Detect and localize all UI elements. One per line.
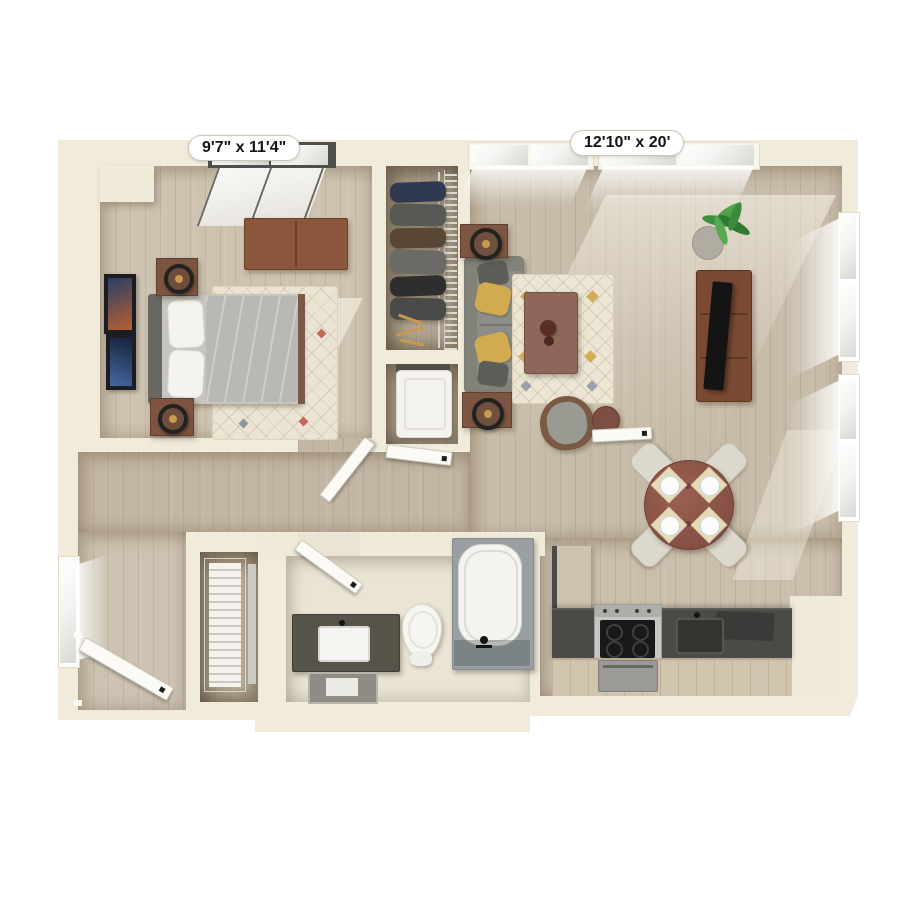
front-door-handle <box>159 686 166 693</box>
end-lamp-bulb-upper <box>482 240 490 248</box>
coffee-table-decor-vase <box>540 320 556 336</box>
toilet-base <box>410 652 432 666</box>
washer-lid <box>404 378 446 430</box>
living-right-pane-1 <box>840 215 856 279</box>
stove-knob-4 <box>647 609 651 613</box>
bedroom-corner-column <box>100 166 154 202</box>
hanging-garment-3 <box>390 228 446 249</box>
armchair-cushion <box>544 399 591 447</box>
hanging-garment-5 <box>390 275 447 297</box>
kitchen-faucet <box>694 612 700 618</box>
hanging-garment-2 <box>390 204 446 227</box>
sofa-back <box>465 257 477 393</box>
plate-nw <box>659 475 681 497</box>
wall-art-2 <box>106 334 136 390</box>
end-table-lamp-upper <box>470 228 502 260</box>
bed-pillow-2 <box>167 349 205 399</box>
range-stove <box>594 604 662 662</box>
oven-front <box>598 660 658 692</box>
coffee-table-decor-small <box>544 336 554 346</box>
stove-knob-1 <box>603 609 607 613</box>
vanity-faucet <box>339 620 345 626</box>
burner-3 <box>606 641 623 658</box>
entry-window-pane <box>60 559 76 663</box>
laundry-door-handle <box>441 456 447 462</box>
kitchen-base-cabinets <box>552 658 792 696</box>
dining-table <box>644 460 734 550</box>
living-right-pane-2 <box>840 284 856 357</box>
bathtub-inner-rim <box>464 550 518 642</box>
living-right-pane-4 <box>840 444 856 517</box>
bed-footboard <box>298 294 305 404</box>
potted-plant <box>686 198 760 264</box>
burner-2 <box>632 624 649 641</box>
dresser <box>244 218 348 270</box>
hanging-garment-1 <box>390 181 447 203</box>
wall-art-1 <box>104 274 136 334</box>
stove-control-panel <box>595 605 661 617</box>
bed-duvet <box>206 296 300 402</box>
burner-4 <box>632 641 649 658</box>
table-lamp-lower <box>158 404 188 434</box>
stove-cooktop <box>600 620 655 658</box>
burner-1 <box>606 624 623 641</box>
stove-knob-2 <box>615 609 619 613</box>
living-window-pane-1 <box>471 145 528 165</box>
hanging-garment-6 <box>390 298 446 321</box>
tub-faucet <box>480 636 488 644</box>
living-window-pane-4 <box>679 145 754 165</box>
oven-handle <box>603 665 653 668</box>
counter-appliance <box>716 611 775 641</box>
washer-unit <box>396 370 452 438</box>
bathtub <box>458 544 522 646</box>
living-room-dimension-label: 12'10" x 20' <box>570 130 684 156</box>
front-door-jamb-bottom <box>74 700 82 706</box>
bedroom-dimension-label: 9'7" x 11'4" <box>188 135 300 161</box>
floorplan-canvas: 9'7" x 11'4" 12'10" x 20' <box>0 0 900 900</box>
tub-deck-shadow <box>454 640 530 666</box>
stove-knob-3 <box>635 609 639 613</box>
end-lamp-bulb-lower <box>484 410 492 418</box>
plate-se <box>699 515 721 537</box>
entry-closet-louver-door <box>204 558 246 692</box>
vanity-sink <box>318 626 370 662</box>
bathroom-door-handle <box>350 581 357 588</box>
mirror-reflection <box>326 678 358 696</box>
living-right-pane-3 <box>840 377 856 439</box>
bed-pillow-1 <box>167 299 205 349</box>
lamp-bulb-upper <box>175 275 183 283</box>
bathroom-mirror <box>308 672 378 704</box>
kitchen-sink <box>676 618 724 654</box>
entry-floor <box>78 532 186 710</box>
sofa-pillow-dark-2 <box>476 360 509 388</box>
end-table-lamp-lower <box>472 398 504 430</box>
plate-ne <box>699 475 721 497</box>
plate-sw <box>659 515 681 537</box>
hall-door-handle <box>642 431 647 436</box>
dresser-divider <box>295 221 297 267</box>
hallway-floor <box>78 452 470 532</box>
kitchen-counter-return <box>552 546 591 612</box>
entry-closet-louver-door-2 <box>248 564 256 684</box>
table-lamp-upper <box>164 264 194 294</box>
lamp-bulb-lower <box>169 415 177 423</box>
hanging-garment-4 <box>390 249 447 275</box>
toilet-seat <box>408 611 438 649</box>
tub-faucet-bar <box>476 645 492 648</box>
front-door-jamb-top <box>74 632 82 638</box>
kitchen-right-wall-return <box>790 596 842 696</box>
